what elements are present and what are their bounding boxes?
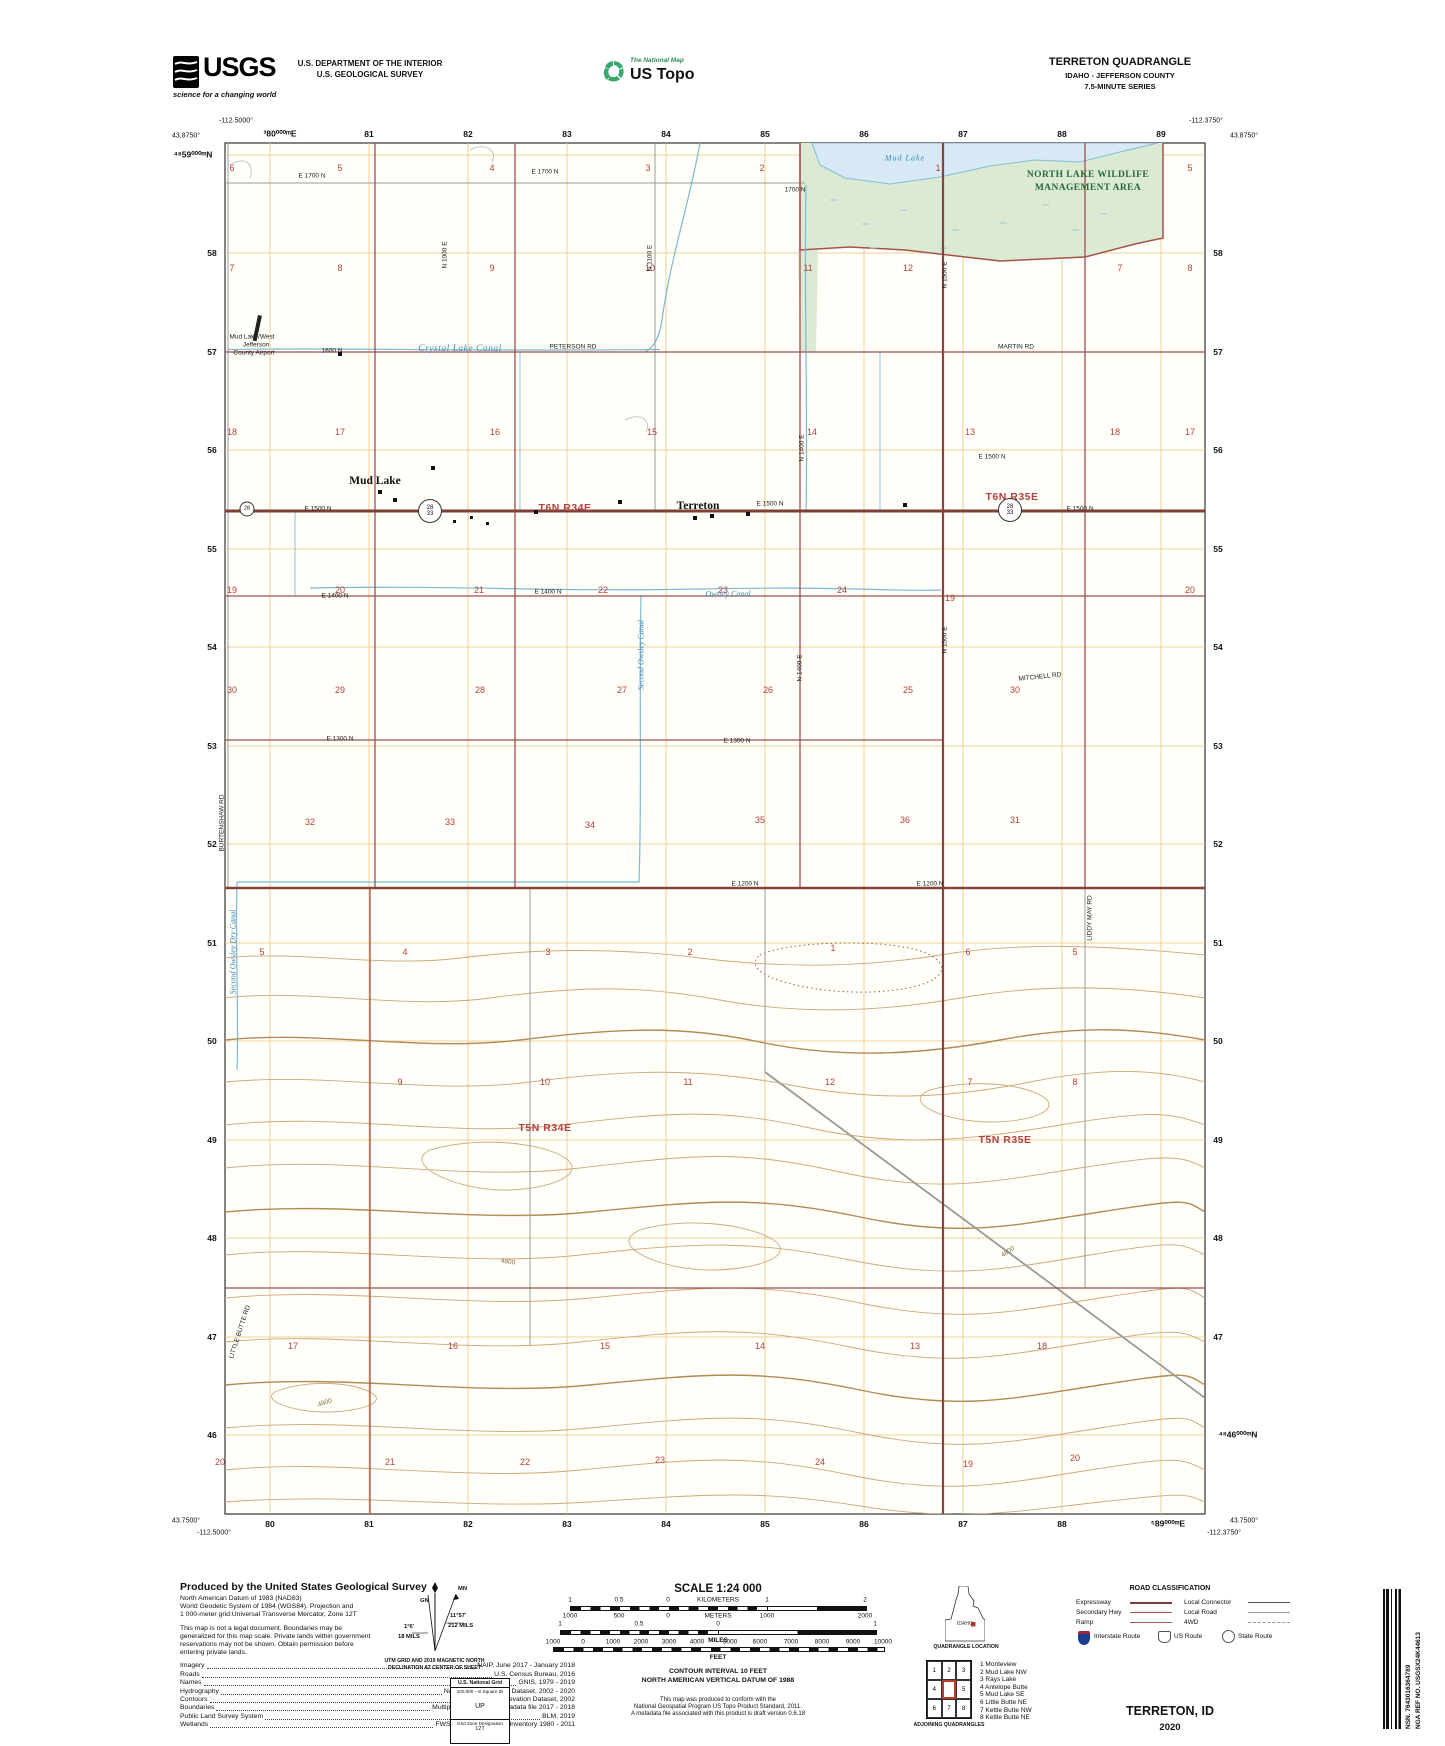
scale-label: 1 xyxy=(558,1621,562,1628)
scale-label: 1 xyxy=(873,1621,877,1628)
scale-label: 9000 xyxy=(846,1639,860,1646)
barcode xyxy=(1383,1589,1403,1729)
footer-note-line: World Geodetic System of 1984 (WGS84). P… xyxy=(180,1603,580,1611)
legend-expressway-label: Expressway xyxy=(1076,1599,1111,1606)
conformance-note-1: This map was produced to conform with th… xyxy=(558,1697,878,1703)
adjoining-cell-center xyxy=(942,1680,957,1699)
scale-label: 10000 xyxy=(874,1639,892,1646)
scale-bar-mi xyxy=(560,1630,720,1635)
route-shield-28-33: 28 33 xyxy=(418,499,442,523)
legend-ramp-line xyxy=(1130,1622,1172,1623)
route-shield-small: 28 xyxy=(240,502,255,517)
adjoining-quad-name: 8 Kettle Butte NE xyxy=(980,1714,1032,1722)
sheet-name: TERRETON, ID xyxy=(1090,1704,1250,1718)
sheet-year: 2020 xyxy=(1090,1722,1250,1733)
credit-row: NamesGNIS, 1979 - 2019 xyxy=(180,1679,575,1687)
grid-north-label: GN xyxy=(420,1598,429,1604)
scale-title: SCALE 1:24 000 xyxy=(628,1583,808,1595)
usgs-topo-sheet: USGS science for a changing world U.S. D… xyxy=(0,0,1445,1746)
scale-label: 1 xyxy=(568,1597,572,1604)
adjoining-cell: 3 xyxy=(956,1661,971,1680)
conformance-note-3: A metadata file associated with this pro… xyxy=(558,1711,878,1717)
scale-label: 3000 xyxy=(662,1639,676,1646)
scale-label: 0 xyxy=(666,1613,670,1620)
scale-label: 2000 xyxy=(858,1613,872,1620)
declination-caption-2: DECLINATION AT CENTER OF SHEET xyxy=(352,1665,517,1671)
legend-state-route-label: State Route xyxy=(1238,1633,1272,1640)
declination-caption-1: UTM GRID AND 2019 MAGNETIC NORTH xyxy=(352,1658,517,1664)
scale-label: 2000 xyxy=(634,1639,648,1646)
scale-label: 0.5 xyxy=(634,1621,643,1628)
mn-mils: 212 MILS xyxy=(448,1623,473,1629)
legend-4wd-label: 4WD xyxy=(1184,1619,1198,1626)
legend-secondary-line xyxy=(1130,1612,1172,1613)
adjoining-cell: 6 xyxy=(927,1699,942,1718)
adjoining-cell: 2 xyxy=(942,1661,957,1680)
credit-row: Public Land Survey SystemBLM, 2019 xyxy=(180,1713,575,1721)
legend-local-connector-line xyxy=(1248,1602,1290,1603)
scale-label: 5000 xyxy=(723,1639,737,1646)
usng-square-id: UP xyxy=(451,1703,509,1710)
idaho-outline: IDAHO xyxy=(945,1586,985,1642)
legend-local-road-line xyxy=(1248,1612,1290,1613)
scale-label: 8000 xyxy=(815,1639,829,1646)
adjoining-grid: 1 2 3 4 5 6 7 8 xyxy=(926,1660,972,1719)
declination-diagram xyxy=(390,1581,480,1661)
adjoining-quad-name: 4 Antelope Butte xyxy=(980,1684,1032,1692)
scale-label: 6000 xyxy=(753,1639,767,1646)
adjoining-quad-name: 5 Mud Lake SE xyxy=(980,1691,1032,1699)
scale-label: KILOMETERS xyxy=(697,1597,739,1604)
adjoining-cell: 1 xyxy=(927,1661,942,1680)
legend-secondary-label: Secondary Hwy xyxy=(1076,1609,1122,1616)
gn-mils: 18 MILS xyxy=(398,1634,420,1640)
usng-box: U.S. National Grid 100,000 - m Square ID… xyxy=(450,1678,510,1744)
scale-label: 1 xyxy=(765,1597,769,1604)
adjoining-quad-name: 6 Little Butte NE xyxy=(980,1699,1032,1707)
footer-note-line: entering private lands. xyxy=(180,1649,580,1657)
scale-label: 1000 xyxy=(546,1639,560,1646)
adjoining-cell: 7 xyxy=(942,1699,957,1718)
state-route-circle-icon xyxy=(1222,1630,1235,1643)
route-number: 33 xyxy=(1007,510,1014,517)
scale-label: 0 xyxy=(581,1639,585,1646)
us-route-shield-icon xyxy=(1158,1631,1171,1643)
adjoining-quad-name: 2 Mud Lake NW xyxy=(980,1669,1032,1677)
route-shield-28-33: 28 33 xyxy=(998,498,1022,522)
scale-label: 1000 xyxy=(760,1613,774,1620)
usng-gzd-label: Grid Zone Designation xyxy=(451,1719,509,1726)
scale-label: 2 xyxy=(863,1597,867,1604)
scale-bar-mi2 xyxy=(718,1630,877,1635)
gn-angle: 1°6' xyxy=(404,1624,414,1630)
scale-bar-km xyxy=(570,1606,769,1611)
legend-4wd-line xyxy=(1248,1622,1290,1623)
adjoining-quad-name: 3 Rays Lake xyxy=(980,1676,1032,1684)
conformance-note-2: National Geospatial Program US Topo Prod… xyxy=(558,1704,878,1710)
legend-expressway-line xyxy=(1130,1602,1172,1604)
legend-local-road-label: Local Road xyxy=(1184,1609,1217,1616)
adjoining-quad-name: 7 Kettle Butte NW xyxy=(980,1707,1032,1715)
scale-label: 7000 xyxy=(784,1639,798,1646)
scale-label: 4000 xyxy=(690,1639,704,1646)
wildlife-area-strip xyxy=(798,250,818,352)
credit-row: ContoursNational Elevation Dataset, 2002 xyxy=(180,1696,575,1704)
quadrangle-location-caption: QUADRANGLE LOCATION xyxy=(922,1644,1010,1650)
footer-note-line: North American Datum of 1983 (NAD83) xyxy=(180,1595,580,1603)
mn-angle: 11°57' xyxy=(450,1613,466,1619)
footer-note-line: generalized for this map scale. Private … xyxy=(180,1633,580,1641)
footer-note-line: reservations may not be shown. Obtain pe… xyxy=(180,1641,580,1649)
map-canvas xyxy=(0,0,1445,1746)
legend-interstate-label: Interstate Route xyxy=(1094,1633,1140,1640)
scale-bar-km2 xyxy=(767,1606,867,1611)
scale-label: 500 xyxy=(614,1613,625,1620)
datum-notes: North American Datum of 1983 (NAD83)Worl… xyxy=(180,1595,580,1657)
usng-zone: 12T xyxy=(451,1726,509,1732)
footer-note-line: This map is not a legal document. Bounda… xyxy=(180,1625,580,1633)
adjoining-list: 1 Monteview2 Mud Lake NW3 Rays Lake4 Ant… xyxy=(980,1661,1032,1722)
adjoining-caption: ADJOINING QUADRANGLES xyxy=(905,1722,993,1728)
barcode-nsn: NSN. 7643016364789 xyxy=(1405,1589,1412,1729)
scale-label: 0.5 xyxy=(614,1597,623,1604)
produced-by-block: Produced by the United States Geological… xyxy=(180,1581,580,1730)
usng-square-label: 100,000 - m Square ID xyxy=(451,1688,509,1694)
route-number: 33 xyxy=(427,511,434,518)
scale-label: 1000 xyxy=(606,1639,620,1646)
idaho-state-label: IDAHO xyxy=(957,1621,973,1627)
usng-title: U.S. National Grid xyxy=(451,1679,509,1688)
vertical-datum-note: NORTH AMERICAN VERTICAL DATUM OF 1988 xyxy=(598,1677,838,1684)
legend-us-route-label: US Route xyxy=(1174,1633,1202,1640)
scale-label: 0 xyxy=(716,1621,720,1628)
contour-interval-note: CONTOUR INTERVAL 10 FEET xyxy=(598,1668,838,1675)
adjoining-cell: 8 xyxy=(956,1699,971,1718)
legend-ramp-label: Ramp xyxy=(1076,1619,1093,1626)
credit-row: BoundariesMultiple sources; see metadata… xyxy=(180,1704,575,1712)
legend-local-connector-label: Local Connector xyxy=(1184,1599,1231,1606)
scale-bar-ft xyxy=(553,1647,885,1652)
adjoining-cell: 4 xyxy=(927,1680,942,1699)
barcode-nga-ref: NGA REF NO. USGSX24K44613 xyxy=(1415,1589,1422,1729)
magnetic-north-label: MN xyxy=(458,1586,467,1592)
scale-label: 0 xyxy=(666,1597,670,1604)
produced-by-title: Produced by the United States Geological… xyxy=(180,1581,580,1593)
footer-note-line: 1 000-meter grid:Universal Transverse Me… xyxy=(180,1611,580,1619)
credit-row: WetlandsFWS National Wetlands Inventory … xyxy=(180,1721,575,1729)
road-classification-title: ROAD CLASSIFICATION xyxy=(1060,1585,1280,1592)
adjoining-cell: 5 xyxy=(956,1680,971,1699)
credit-row: HydrographyNational Hydrography Dataset,… xyxy=(180,1688,575,1696)
route-number: 28 xyxy=(244,506,250,513)
interstate-shield-icon xyxy=(1078,1631,1090,1645)
data-credits: ImageryNAIP, June 2017 - January 2018Roa… xyxy=(180,1662,580,1729)
scale-feet-caption: FEET xyxy=(700,1654,736,1661)
scale-label: 1000 xyxy=(563,1613,577,1620)
adjoining-quad-name: 1 Monteview xyxy=(980,1661,1032,1669)
credit-row: RoadsU.S. Census Bureau, 2016 xyxy=(180,1671,575,1679)
scale-label: METERS xyxy=(704,1613,731,1620)
